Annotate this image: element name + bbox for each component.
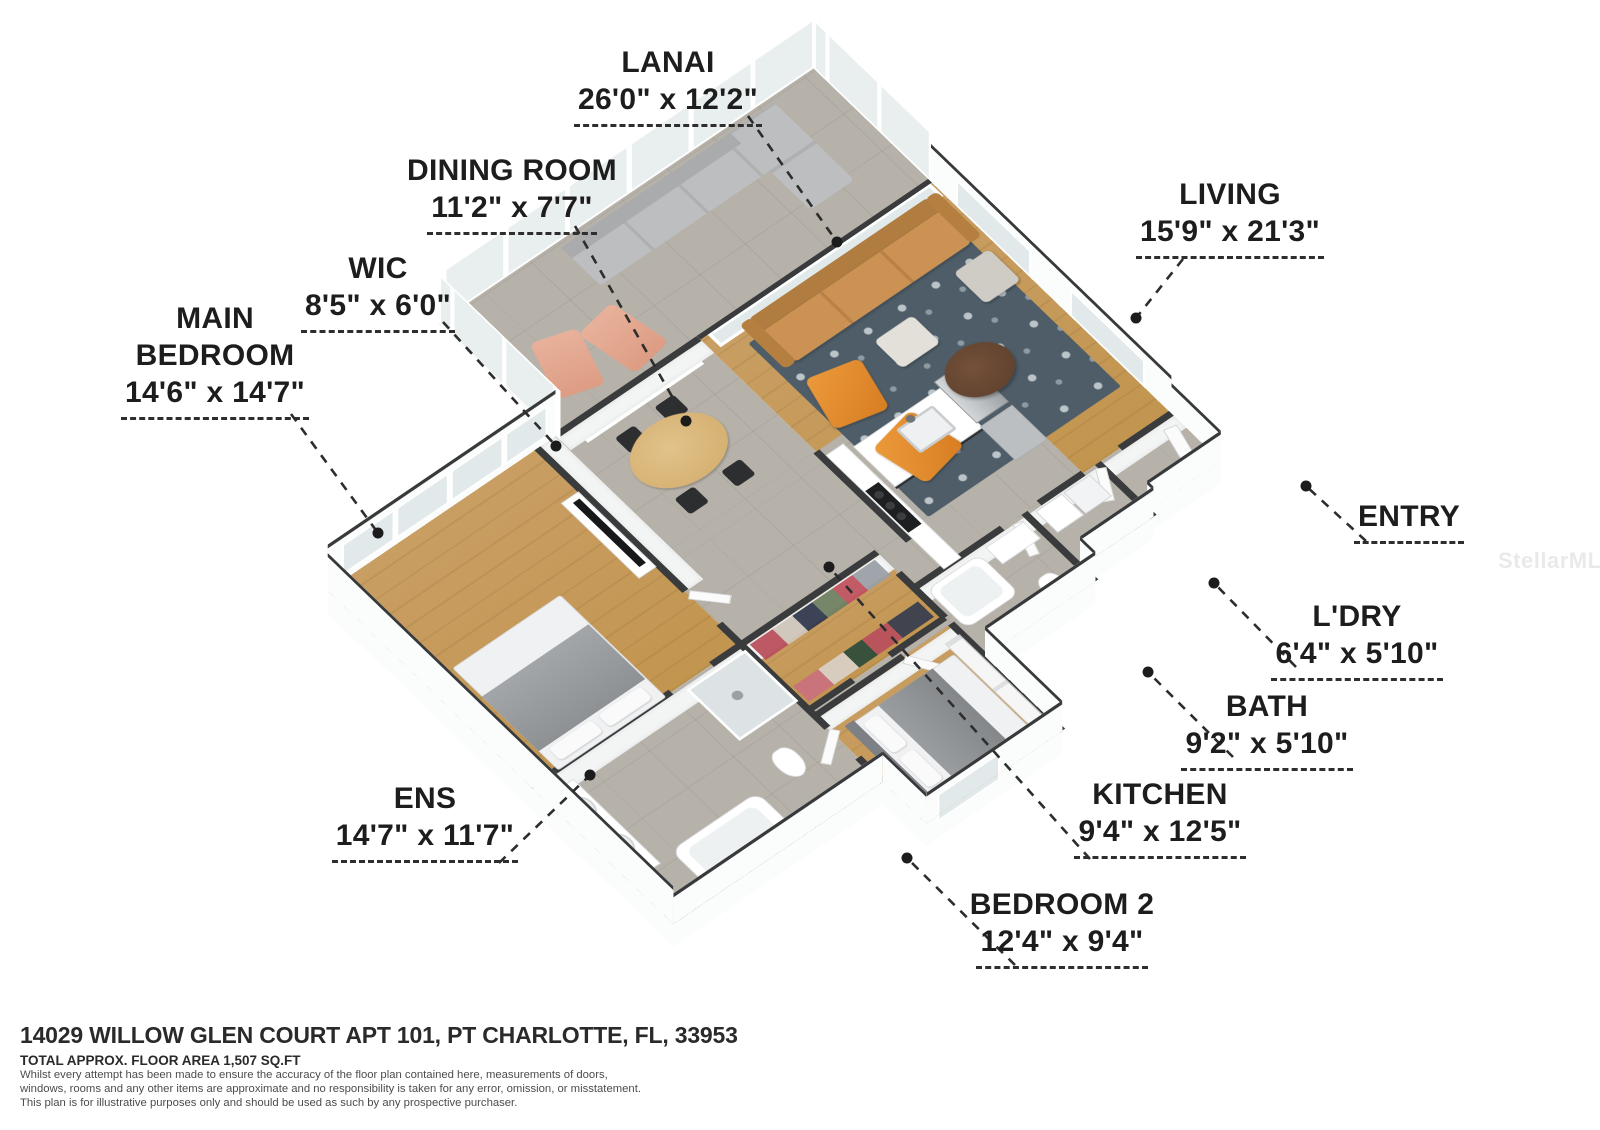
room-name: BATH: [1137, 688, 1397, 725]
bedroom-window: [395, 471, 449, 540]
stellar-mls-watermark: StellarMLS: [1498, 548, 1600, 574]
label-laundry: L'DRY 6'4" x 5'10": [1227, 598, 1487, 681]
room-name: MAIN BEDROOM: [120, 300, 310, 374]
label-lanai: LANAI 26'0" x 12'2": [528, 44, 808, 127]
disclaimer-line: This plan is for illustrative purposes o…: [20, 1096, 738, 1110]
room-dims: 15'9" x 21'3": [1136, 213, 1324, 259]
room-name: BEDROOM 2: [912, 886, 1212, 923]
room-dims: 14'7" x 11'7": [332, 817, 518, 863]
room-name: LIVING: [1090, 176, 1370, 213]
room-name: LANAI: [528, 44, 808, 81]
room-name: DINING ROOM: [352, 152, 672, 189]
room-dims: 9'2" x 5'10": [1181, 725, 1352, 771]
room-name: ENS: [285, 780, 565, 817]
room-name: ENTRY: [1354, 498, 1464, 544]
room-dims: 6'4" x 5'10": [1271, 635, 1442, 681]
leader-living: [1136, 259, 1183, 318]
room-dims: 9'4" x 12'5": [1074, 813, 1245, 859]
label-living: LIVING 15'9" x 21'3": [1090, 176, 1370, 259]
label-dining-room: DINING ROOM 11'2" x 7'7": [352, 152, 672, 235]
room-dims: 11'2" x 7'7": [427, 189, 596, 235]
footer: 14029 WILLOW GLEN COURT APT 101, PT CHAR…: [20, 1022, 738, 1110]
room-dims: 8'5" x 6'0": [301, 287, 455, 333]
label-bedroom2: BEDROOM 2 12'4" x 9'4": [912, 886, 1212, 969]
room-name: WIC: [258, 250, 498, 287]
label-bath: BATH 9'2" x 5'10": [1137, 688, 1397, 771]
disclaimer-line: Whilst every attempt has been made to en…: [20, 1068, 738, 1082]
leader-dot-living: [1131, 313, 1142, 324]
label-main-bedroom: MAIN BEDROOM 14'6" x 14'7": [120, 300, 310, 420]
room-dims: 12'4" x 9'4": [976, 923, 1147, 969]
label-entry: ENTRY: [1299, 498, 1519, 544]
leader-dot-entry: [1301, 481, 1312, 492]
label-ens: ENS 14'7" x 11'7": [285, 780, 565, 863]
floor-area-total: TOTAL APPROX. FLOOR AREA 1,507 SQ.FT: [20, 1053, 738, 1068]
room-dims: 26'0" x 12'2": [574, 81, 762, 127]
bedroom-window: [341, 508, 395, 577]
label-kitchen: KITCHEN 9'4" x 12'5": [1020, 776, 1300, 859]
disclaimer-line: windows, rooms and any other items are a…: [20, 1082, 738, 1096]
room-dims: 14'6" x 14'7": [121, 374, 309, 420]
property-address: 14029 WILLOW GLEN COURT APT 101, PT CHAR…: [20, 1022, 738, 1049]
room-name: KITCHEN: [1020, 776, 1300, 813]
room-name: L'DRY: [1227, 598, 1487, 635]
